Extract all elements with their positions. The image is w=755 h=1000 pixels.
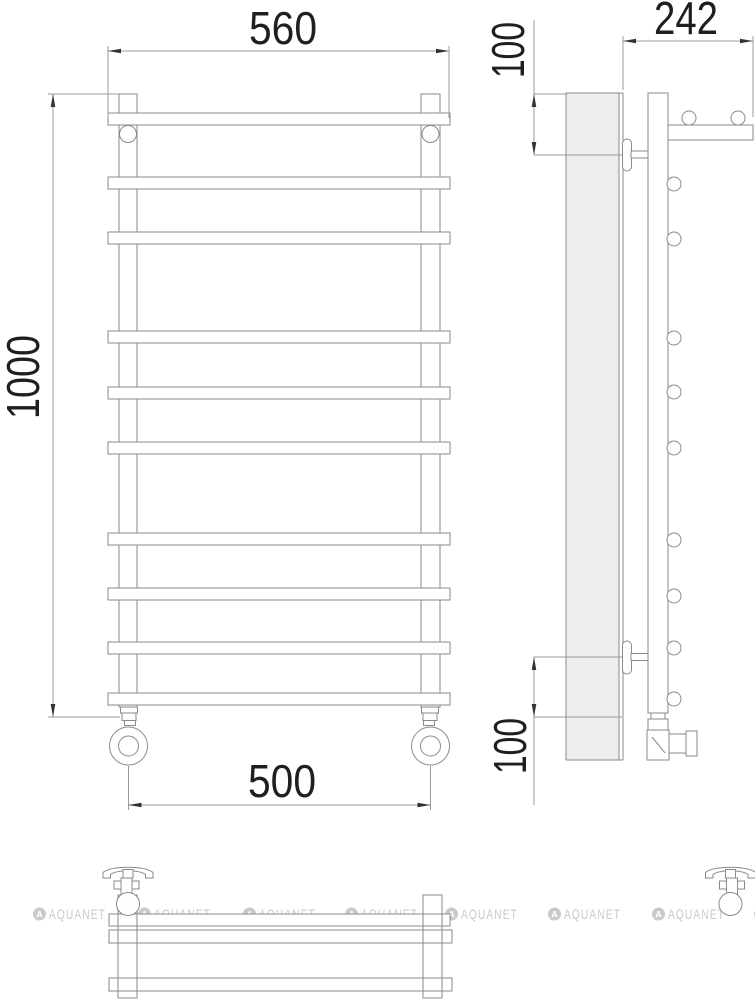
dimension-value: 100 [484,718,536,774]
rung-end [667,385,681,399]
valve-collar [651,713,665,719]
bracket-flange [623,641,632,674]
fitting-collar [422,707,439,713]
dimension-arrow-left [108,49,121,54]
bottom-wall-bracket [623,641,649,674]
front-left-connection [110,707,148,765]
fitting-collar [121,707,138,713]
valve-ball [117,893,140,916]
rung-end [667,331,681,345]
rung-end [667,441,681,455]
watermark-item: A AQUANET [548,906,621,922]
side-post [648,93,668,713]
rung-end [667,533,681,547]
top-wall-bracket [623,139,649,171]
bracket-arm [631,654,648,661]
rung [108,331,450,343]
rung-end [667,692,681,706]
rung [108,533,450,545]
dimension-front-width: 560 [108,2,449,118]
valve-outlet [669,734,686,753]
fitting-neck [424,721,435,726]
valve-ball [719,893,742,916]
rung-end [667,177,681,191]
front-view: 560 1000 500 [0,2,450,810]
rung [108,642,450,654]
dimension-arrow-up [532,657,537,670]
dimension-arrow-up [532,94,537,107]
valve-side-nub [114,881,121,889]
dimension-lines [623,36,753,117]
dimension-value: 100 [482,22,534,78]
brand-logo-letter: A [551,910,558,920]
fitting-body [423,713,437,721]
fitting-neck [125,721,136,726]
side-valve-assembly [647,713,697,760]
front-top-shelf-bar [108,113,450,125]
dimension-value: 560 [249,2,317,54]
valve-side-nub [132,881,139,889]
dimension-arrow-down [532,142,537,155]
dimension-arrow-bottom [51,704,56,717]
rung [108,442,450,454]
bracket-arm [631,151,648,158]
rung [108,232,450,244]
side-view: 242 100 100 [482,0,753,805]
rung [108,588,450,600]
shelf-tube-end [682,111,696,125]
valve-stem-top [726,870,736,879]
front-right-connection [412,707,450,765]
watermark-item: A AQUANET [445,906,518,922]
brand-watermark-text: AQUANET [668,906,725,922]
dimension-depth: 242 [623,0,753,117]
dimension-arrow-left [129,803,142,808]
valve-side-nub [738,881,745,889]
dimension-value: 242 [654,0,718,44]
brand-watermark-text: AQUANET [461,906,518,922]
side-shelf-bar [668,125,753,140]
dimension-arrow-right [436,49,449,54]
watermark-item: A AQUANET [33,906,106,922]
dimension-lines [108,46,449,118]
wall-section [566,93,619,760]
rung [108,387,450,399]
dimension-arrow-top [51,94,56,107]
valve-side-nub [720,881,727,889]
rung [108,177,450,189]
shelf-ring [422,126,439,143]
rung-end [667,232,681,246]
watermark-item: A AQUANET [652,906,725,922]
shelf-ring [120,126,137,143]
brand-logo-letter: A [655,910,662,920]
front-bottom-bar [108,693,450,705]
dimension-arrow-down [532,704,537,717]
plan-rear-bar [109,978,452,991]
escutcheon-inner [119,736,139,756]
rung-end [667,641,681,655]
plan-front-bar [109,930,452,943]
towel-rail-technical-drawing: A AQUANET A AQUANET A AQUANET A AQUANET … [0,0,755,1000]
dimension-value: 500 [248,755,316,807]
brand-watermark-text: AQUANET [49,906,106,922]
dimension-connection-spacing: 500 [129,755,431,810]
drawing-canvas: A AQUANET A AQUANET A AQUANET A AQUANET … [0,0,755,1000]
dimension-arrow-left [623,39,636,44]
dimension-front-height: 1000 [0,94,120,717]
valve-stem-top [123,870,133,879]
valve-coupler [686,731,697,756]
valve-neck [648,719,668,730]
dimension-arrow-right [740,39,753,44]
bottom-view [103,867,755,998]
plan-shelf-bar [109,914,450,926]
rung-end [667,589,681,603]
bracket-flange [623,139,632,171]
fitting-body [122,713,136,721]
dimension-value: 1000 [0,335,49,419]
shelf-tube-end [731,111,745,125]
brand-logo-letter: A [36,910,43,920]
dimension-arrow-right [418,803,431,808]
brand-watermark-text: AQUANET [564,906,621,922]
escutcheon-inner [421,736,441,756]
